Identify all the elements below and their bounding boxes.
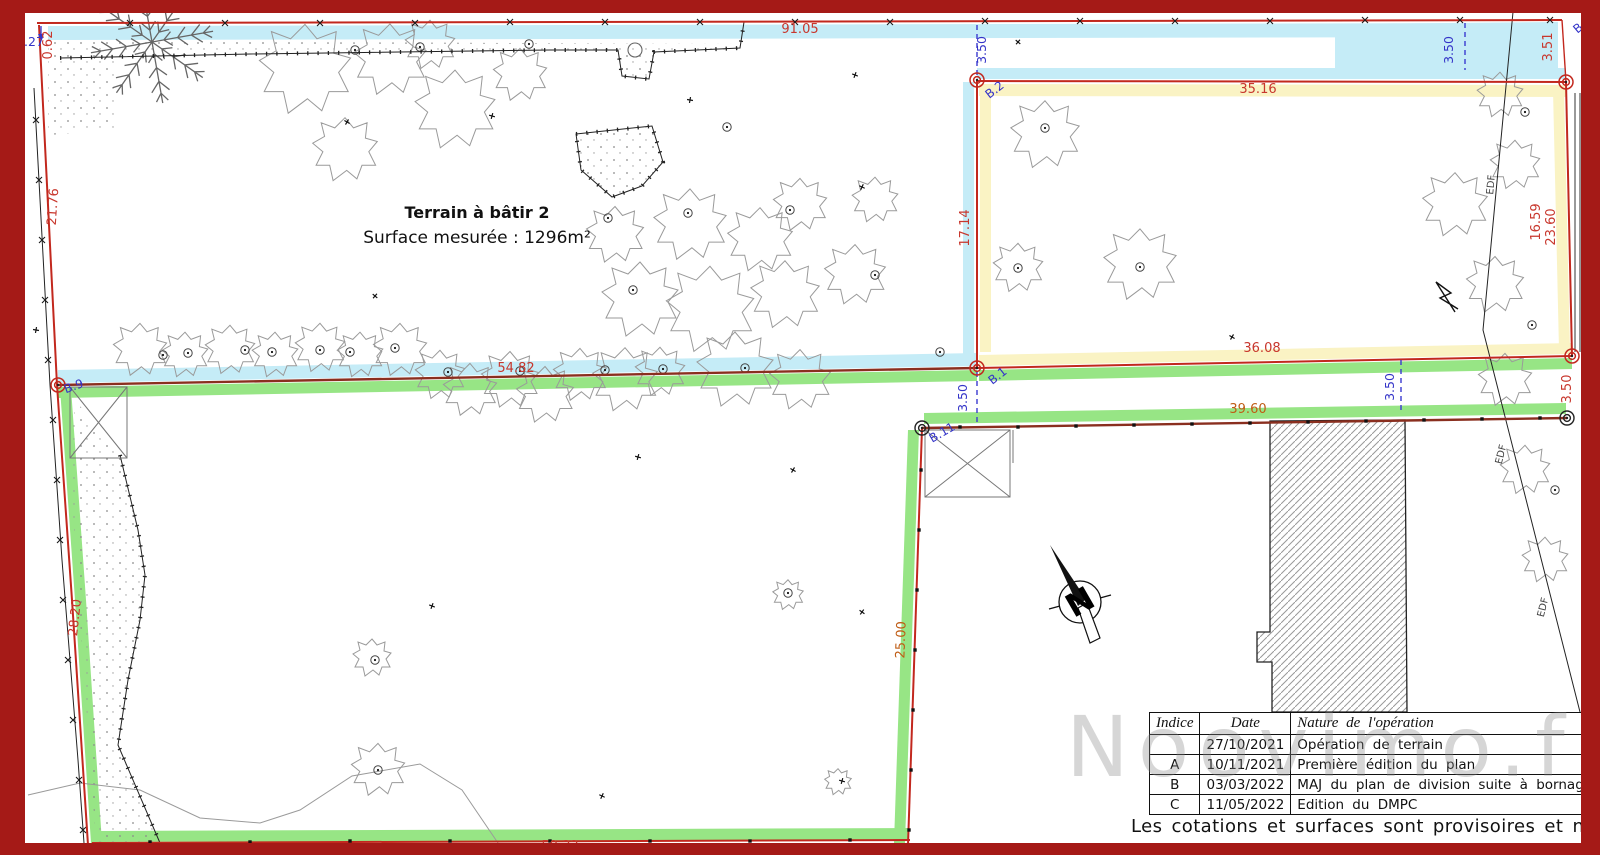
dim-351: 3.51: [1541, 33, 1556, 62]
gravel-texture: [48, 41, 744, 842]
parcel-title: Terrain à bâtir 2: [404, 203, 549, 222]
north-letter: N: [1059, 579, 1101, 625]
col-date: Date: [1200, 713, 1291, 735]
rev3-date: 11/05/2022: [1200, 795, 1291, 815]
right-wall: [1575, 93, 1580, 352]
dim-2500: 25.00: [893, 621, 909, 659]
disclaimer-note: Les cotations et surfaces sont provisoir…: [1131, 816, 1600, 837]
edf-label-2: EDF: [1494, 443, 1510, 465]
revision-header-row: Indice Date Nature de l'opération: [1150, 713, 1600, 735]
dim-350-right: 3.50: [1560, 375, 1575, 404]
rev2-indice: B: [1150, 775, 1200, 795]
rev1-nature: Première édition du plan: [1291, 755, 1600, 775]
revision-row: B 03/03/2022 MAJ du plan de division sui…: [1150, 775, 1600, 795]
north-arrow: N: [1049, 545, 1111, 643]
edf-label-3: EDF: [1536, 596, 1552, 618]
col-indice: Indice: [1150, 713, 1200, 735]
building-hatched: [1257, 420, 1407, 712]
dim-parcel-mid: 36.08: [1243, 341, 1280, 356]
rev1-indice: A: [1150, 755, 1200, 775]
dim-parcel-left: 17.14: [958, 209, 973, 246]
dim-top: 91.05: [781, 22, 818, 37]
dim-3960: 39.60: [1229, 402, 1266, 417]
rev3-indice: C: [1150, 795, 1200, 815]
frame-right: [1581, 0, 1600, 855]
offset-350-4: 3.50: [1382, 373, 1397, 401]
survey-plan: N Terrain à bâtir 2 Surface mesurée : 12…: [0, 0, 1600, 855]
dim-2360: 23.60: [1544, 208, 1559, 245]
dim-mid: 54.82: [497, 361, 534, 376]
col-nature: Nature de l'opération: [1291, 713, 1600, 735]
revision-table: Indice Date Nature de l'opération 27/10/…: [1149, 712, 1600, 815]
frame-left: [0, 0, 25, 855]
rev0-date: 27/10/2021: [1200, 735, 1291, 755]
parcel-surface: Surface mesurée : 1296m²: [363, 228, 591, 248]
revision-row: 27/10/2021 Opération de terrain: [1150, 735, 1600, 755]
offset-350-2: 3.50: [1441, 36, 1456, 64]
dim-parcel-top: 35.16: [1239, 82, 1276, 97]
rev2-date: 03/03/2022: [1200, 775, 1291, 795]
rev1-date: 10/11/2021: [1200, 755, 1291, 775]
rev2-nature: MAJ du plan de division suite à bornage …: [1291, 775, 1600, 795]
frame-top: [0, 0, 1600, 13]
offset-350-3: 3.50: [955, 384, 970, 412]
rev0-nature: Opération de terrain: [1291, 735, 1600, 755]
revision-row: A 10/11/2021 Première édition du plan: [1150, 755, 1600, 775]
frame-bottom: [0, 843, 1600, 855]
revision-row: C 11/05/2022 Edition du DMPC: [1150, 795, 1600, 815]
offset-350-1: 3.50: [974, 36, 989, 64]
edf-label-1: EDF: [1485, 174, 1498, 195]
dim-2176: 21.76: [45, 188, 63, 226]
rev0-indice: [1150, 735, 1200, 755]
rev3-nature: Edition du DMPC: [1291, 795, 1600, 815]
dim-1659: 16.59: [1529, 203, 1544, 240]
